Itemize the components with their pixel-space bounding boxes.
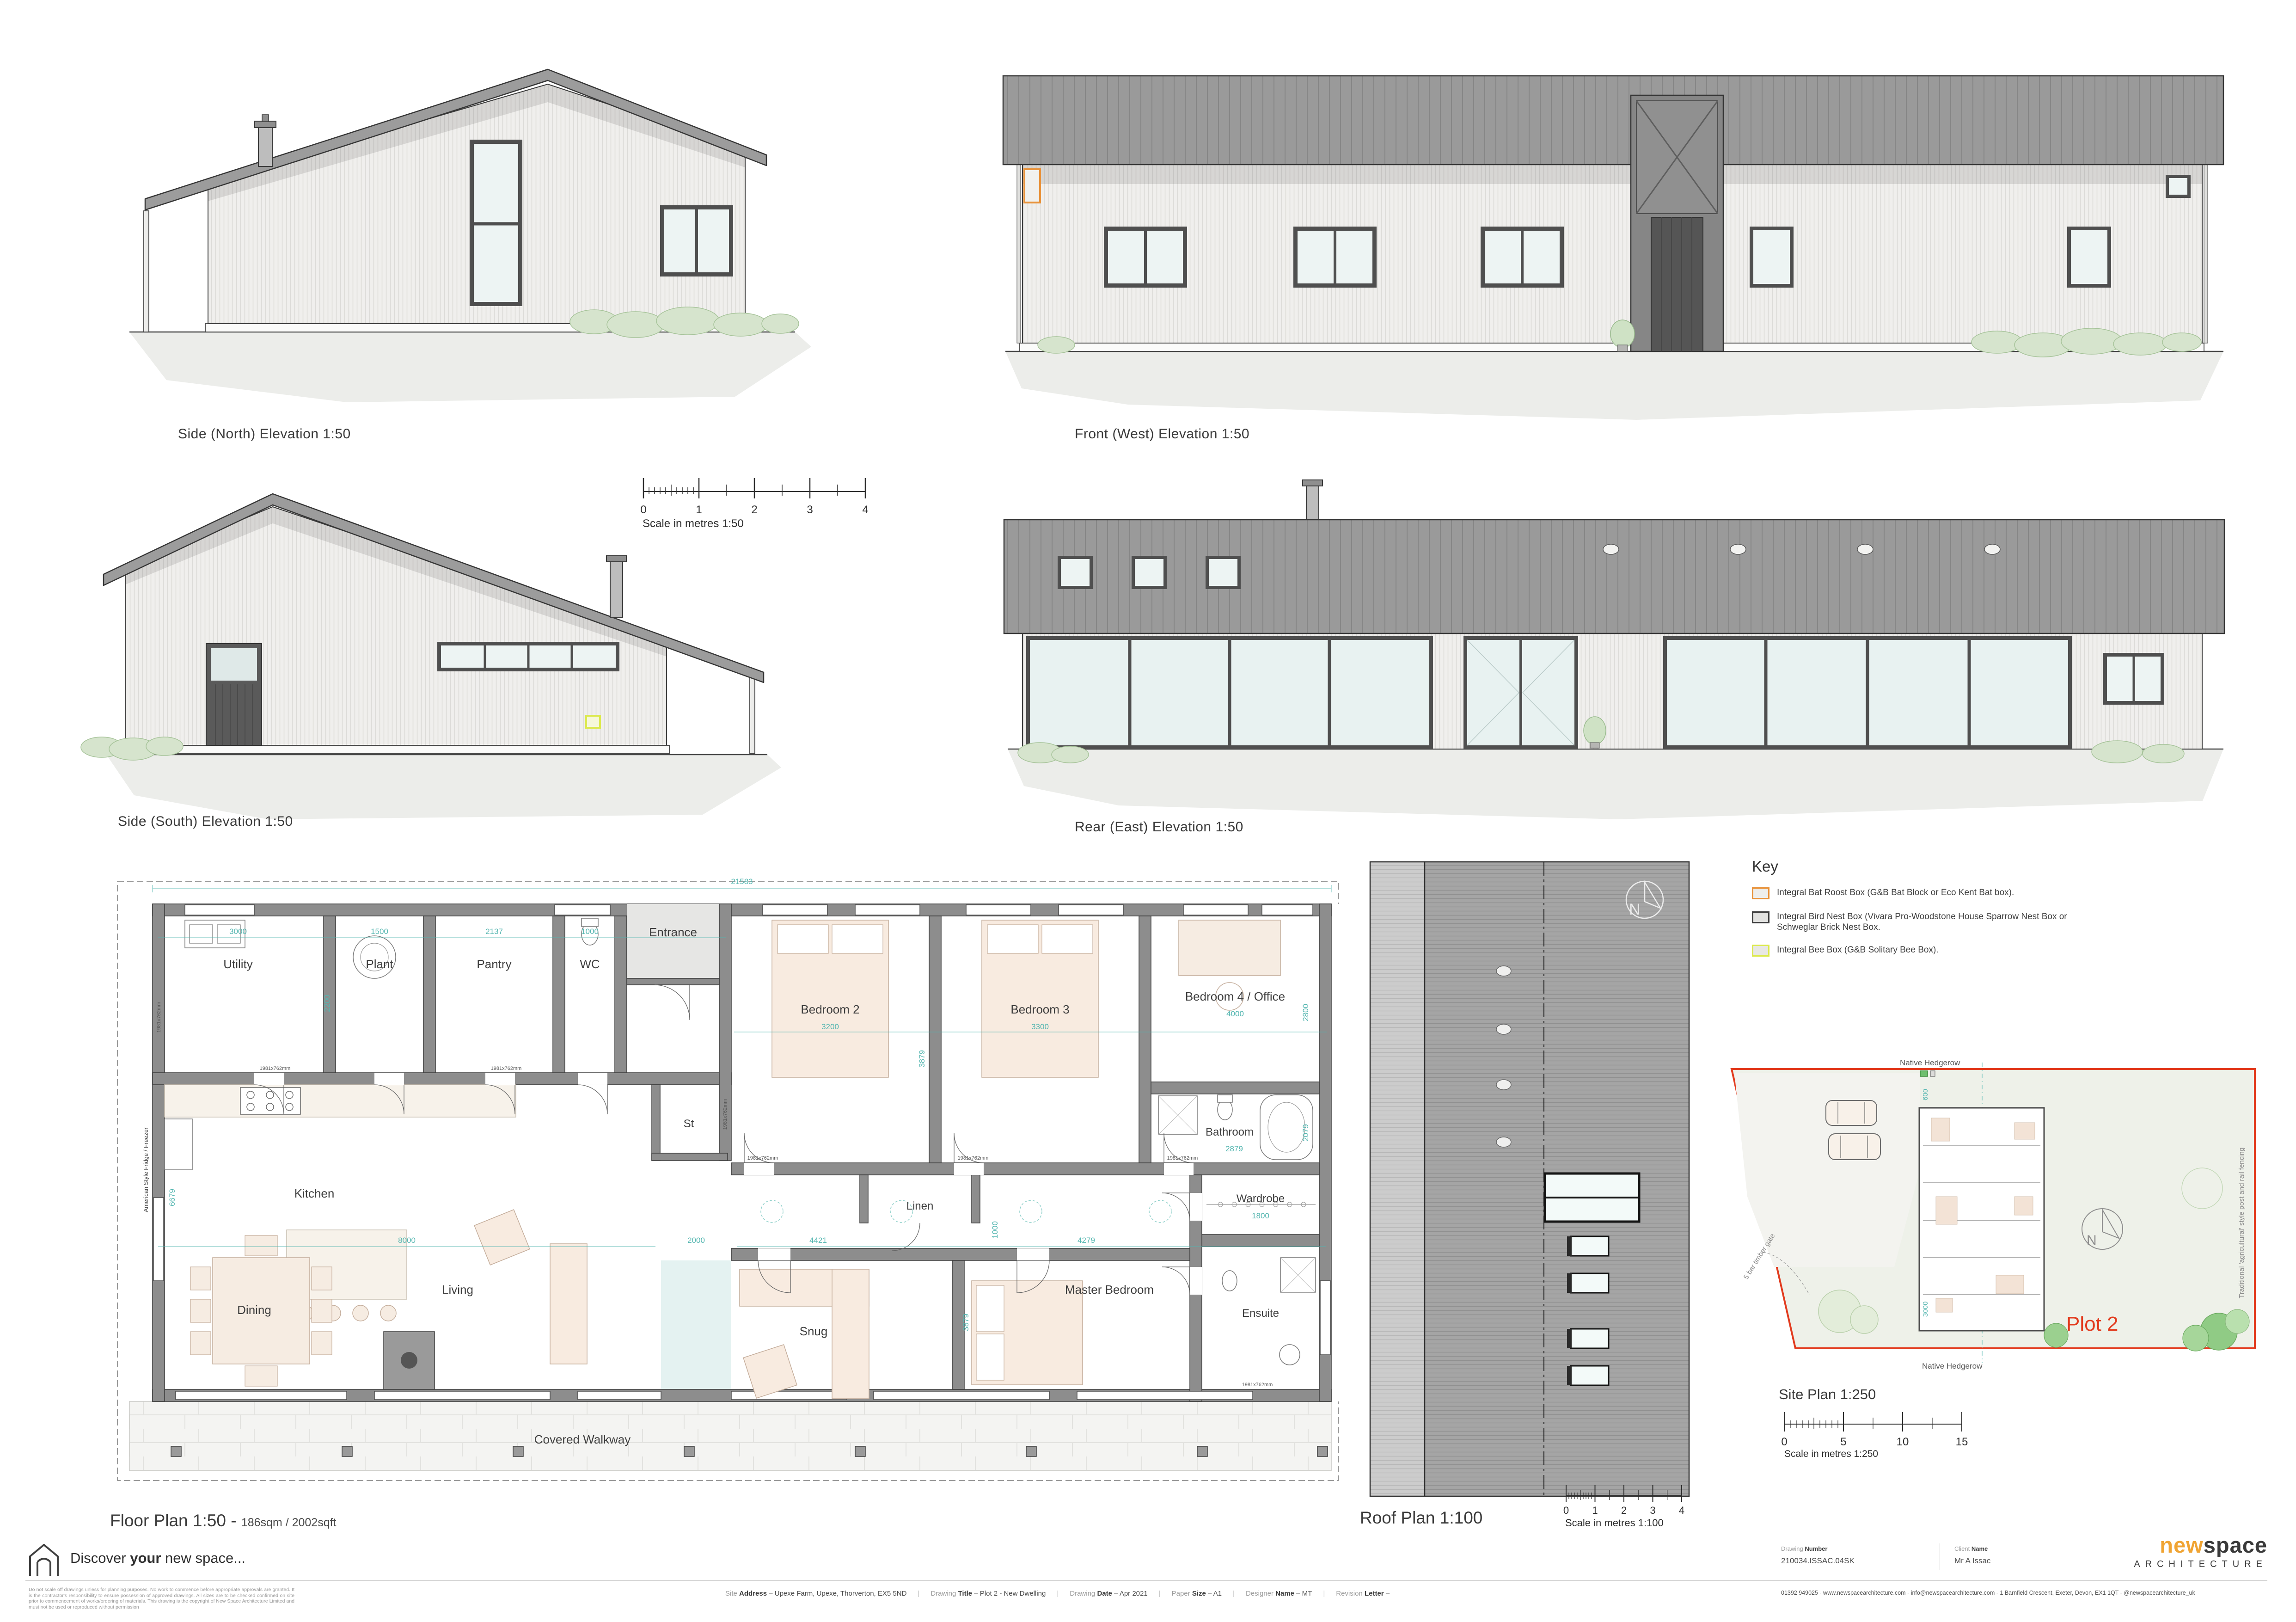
room-label-linen: Linen [906, 1200, 934, 1212]
dim-wc: 1000 [581, 927, 599, 936]
window-5 [2067, 227, 2111, 288]
key-panel: Key Integral Bat Roost Box (G&B Bat Bloc… [1752, 858, 2196, 957]
scale250-caption: Scale in metres 1:250 [1784, 1449, 1878, 1459]
contact-line: 01392 949025 - www.newspacearchitecture.… [1781, 1590, 2195, 1596]
field-value: – MT [1296, 1590, 1312, 1597]
field-label-bold: Title [958, 1590, 973, 1597]
window-pair-3 [1481, 227, 1564, 288]
porch-post [750, 677, 755, 754]
south-elevation-title: Side (South) Elevation 1:50 [118, 814, 293, 829]
brand-space: space [2204, 1533, 2267, 1557]
dim-living-depth: 6679 [168, 1189, 177, 1206]
scale250-tick: 5 [1840, 1436, 1846, 1448]
door-tag: 1981x762mm [491, 1066, 522, 1071]
roof-plan-drawing: N [1367, 859, 1693, 1499]
brand-logo: newspace ARCHITECTURE [2134, 1532, 2267, 1570]
entrance-door [206, 644, 262, 745]
roof-band [1004, 520, 2224, 633]
ground-shadow [1005, 351, 2223, 420]
window-4 [1750, 227, 1794, 288]
room-label-walkway: Covered Walkway [534, 1432, 631, 1446]
north-elevation-drawing [97, 46, 883, 425]
tall-window [470, 140, 522, 306]
driveway [1734, 1073, 1920, 1267]
dim-bathroom: 2879 [1225, 1144, 1243, 1153]
house-logo-icon [25, 1542, 62, 1579]
window-pair-2 [1293, 227, 1377, 288]
field-value: – Plot 2 - New Dwelling [974, 1590, 1046, 1597]
field-revision-letter: Revision Letter – [1336, 1590, 1390, 1597]
rear-elevation-drawing [980, 472, 2247, 842]
field-divider: | [918, 1590, 919, 1597]
room-label-wardrobe: Wardrobe [1237, 1192, 1285, 1205]
key-item-label: Integral Bee Box (G&B Solitary Bee Box). [1777, 945, 1939, 955]
site-plan-title: Site Plan 1:250 [1779, 1386, 1876, 1403]
tagline-pre: Discover [70, 1550, 130, 1566]
high-window [2166, 175, 2191, 198]
field-label: Revision [1336, 1590, 1363, 1597]
flue-cap [1303, 480, 1322, 486]
dim-master-depth: 3879 [961, 1314, 970, 1331]
key-item-bird: Integral Bird Nest Box (Vivara Pro-Woods… [1752, 911, 2186, 933]
field-label: Drawing [1070, 1590, 1095, 1597]
disclaimer-text: Do not scale off drawings unless for pla… [29, 1587, 294, 1610]
entrance-door-wall [627, 978, 719, 985]
brand-new: new [2160, 1533, 2203, 1557]
ground-shadow [129, 332, 811, 402]
dim-bed3: 3300 [1031, 1022, 1049, 1031]
field-drawing-title: Drawing Title – Plot 2 - New Dwelling [931, 1590, 1046, 1597]
dim-living: 8000 [398, 1236, 416, 1245]
client-name-label-pre: Client [1954, 1545, 1970, 1552]
key-item-bat: Integral Bat Roost Box (G&B Bat Block or… [1752, 887, 2186, 899]
drawing-number-label-bold: Number [1805, 1545, 1827, 1552]
front-elevation-title: Front (West) Elevation 1:50 [1075, 426, 1249, 442]
room-label-entrance: Entrance [649, 925, 697, 939]
dim-bed4-depth: 2800 [1301, 1004, 1310, 1021]
scale100-tick: 0 [1563, 1505, 1569, 1516]
field-label: Site [725, 1590, 737, 1597]
dim-master: 4279 [1078, 1236, 1095, 1245]
bat-box-swatch [1752, 887, 1769, 899]
field-label-bold: Size [1192, 1590, 1206, 1597]
entrance-porch [627, 904, 719, 978]
dim-utility-depth: 2200 [323, 995, 331, 1012]
house-footprint [1919, 1108, 2044, 1331]
field-site-address: Site Address – Upexe Farm, Upexe, Thorve… [725, 1590, 906, 1597]
scale100-tick: 1 [1592, 1505, 1598, 1516]
field-label-bold: Letter [1365, 1590, 1384, 1597]
dim-wardrobe: 1800 [1252, 1211, 1269, 1220]
field-divider: | [1233, 1590, 1235, 1597]
site-dim-3000: 3000 [1922, 1302, 1929, 1317]
glazed-sliding-doors-left [1026, 636, 1433, 749]
hedgerow-label-top: Native Hedgerow [1900, 1058, 1960, 1067]
room-label-wc: WC [580, 957, 600, 971]
flue [258, 127, 272, 166]
drawing-number-value: 210034.ISSAC.04SK [1781, 1556, 1855, 1566]
field-value: – [1386, 1590, 1390, 1597]
dim-bed2: 3200 [821, 1022, 839, 1031]
scale250-tick: 15 [1956, 1436, 1968, 1448]
ribbon-window [437, 642, 619, 671]
room-label-bedroom4: Bedroom 4 / Office [1185, 989, 1285, 1003]
door-tag: 1981x762mm [156, 1002, 162, 1033]
scale250-tick: 0 [1781, 1436, 1787, 1448]
door-tag: 1981x762mm [1167, 1155, 1198, 1161]
scale100-caption: Scale in metres 1:100 [1565, 1517, 1664, 1529]
dim-overall: 21583 [731, 877, 753, 886]
brand-wordmark: newspace [2134, 1532, 2267, 1558]
door-tag: 1981x762mm [958, 1155, 989, 1161]
field-label-bold: Address [739, 1590, 767, 1597]
field-designer-name: Designer Name – MT [1246, 1590, 1312, 1597]
room-label-bedroom3: Bedroom 3 [1010, 1002, 1069, 1016]
field-label: Drawing [931, 1590, 956, 1597]
footer-rule [25, 1580, 2267, 1581]
key-item-bee: Integral Bee Box (G&B Solitary Bee Box). [1752, 945, 2186, 957]
site-dim-600: 600 [1922, 1089, 1929, 1100]
plot-label: Plot 2 [2066, 1313, 2118, 1335]
field-value: – Apr 2021 [1114, 1590, 1148, 1597]
tagline: Discover your new space... [70, 1550, 245, 1567]
flue-pipe [262, 115, 269, 122]
hedgerow-label-bottom: Native Hedgerow [1922, 1362, 1983, 1370]
drawing-number-label: Drawing Number [1781, 1545, 1827, 1552]
downpipe [1017, 165, 1021, 343]
field-label: Designer [1246, 1590, 1274, 1597]
dim-bathroom-depth: 2079 [1301, 1124, 1310, 1142]
room-label-kitchen: Kitchen [294, 1186, 335, 1200]
client-name-label-bold: Name [1971, 1545, 1988, 1552]
glazed-sliding-doors-right [1663, 636, 2072, 749]
room-label-pantry: Pantry [477, 957, 511, 971]
end-window [2103, 653, 2164, 705]
scale-bar-1-100: 0 1 2 3 4 Scale in metres 1:100 [1561, 1480, 1691, 1530]
floor-plan-area: 186sqm / 2002sqft [241, 1516, 337, 1529]
dim-pantry: 2137 [485, 927, 503, 936]
dim-utility: 3000 [229, 927, 247, 936]
room-label-utility: Utility [223, 957, 253, 971]
scale-bar-1-250: 0 5 10 15 Scale in metres 1:250 [1779, 1406, 1973, 1459]
south-elevation-drawing [74, 472, 823, 823]
window-pair-1 [1104, 227, 1187, 288]
square-window [660, 205, 733, 276]
scale100-tick: 2 [1621, 1505, 1627, 1516]
tagline-post: new space... [161, 1550, 245, 1566]
field-paper-size: Paper Size – A1 [1172, 1590, 1222, 1597]
glazed-double-door [1463, 636, 1578, 749]
dim-snug: 4421 [809, 1236, 827, 1245]
dim-bed-depth: 3879 [918, 1050, 926, 1068]
downpipe [2204, 165, 2208, 343]
front-elevation-drawing [980, 65, 2247, 435]
room-label-bathroom: Bathroom [1206, 1126, 1254, 1138]
field-label-bold: Name [1275, 1590, 1294, 1597]
walkway-roof [1370, 862, 1425, 1496]
field-value: – A1 [1208, 1590, 1222, 1597]
ground-shadow [106, 755, 781, 819]
room-label-st: St [684, 1118, 694, 1130]
title-block-divider [1940, 1543, 1940, 1570]
floor-plan-title: Floor Plan 1:50 - 186sqm / 2002sqft [110, 1511, 337, 1530]
flue [1306, 485, 1319, 520]
floor-plan-drawing: 21583 3000 1500 2137 1000 2200 3200 3300… [116, 874, 1345, 1489]
room-label-dining: Dining [237, 1303, 271, 1317]
title-block-fields: Site Address – Upexe Farm, Upexe, Thorve… [719, 1590, 1396, 1597]
flue [610, 561, 623, 618]
dim-hall: 1000 [991, 1221, 999, 1239]
door-tag: 1981x762mm [747, 1155, 778, 1161]
field-value: – Upexe Farm, Upexe, Thorverton, EX5 5ND [769, 1590, 906, 1597]
room-label-ensuite: Ensuite [1242, 1307, 1279, 1320]
rear-elevation-title: Rear (East) Elevation 1:50 [1075, 819, 1243, 835]
covered-walkway-paving [129, 1401, 1331, 1471]
roof-plan-title: Roof Plan 1:100 [1360, 1508, 1482, 1528]
door-tag: 1981x762mm [722, 1099, 728, 1130]
dim-bed4: 4000 [1226, 1009, 1244, 1018]
nest-box-marker [1930, 1071, 1935, 1076]
field-label: Paper [1172, 1590, 1190, 1597]
porch-post [144, 211, 149, 332]
roof-band [1003, 76, 2223, 165]
flue-cap [255, 121, 276, 128]
glazed-link [661, 1260, 731, 1401]
door-tag: 1981x762mm [260, 1066, 291, 1071]
key-item-label: Integral Bat Roost Box (G&B Bat Block or… [1777, 887, 2014, 898]
field-label-bold: Date [1097, 1590, 1112, 1597]
scale50-tick: 4 [862, 504, 868, 516]
clerestory-windows [1058, 556, 1241, 589]
eave-shadow [1022, 165, 2202, 184]
nest-box-marker [1920, 1071, 1928, 1076]
ridge-rooflight [1545, 1173, 1639, 1222]
scale100-tick: 3 [1650, 1505, 1655, 1516]
room-label-master: Master Bedroom [1065, 1283, 1154, 1296]
key-title: Key [1752, 858, 2196, 875]
tagline-bold: your [130, 1550, 161, 1566]
flue-cap [606, 556, 626, 562]
site-plan-drawing: N Native Hedgerow Native Hedgerow 600 30… [1719, 1058, 2278, 1377]
room-label-plant: Plant [366, 957, 393, 971]
client-name-value: Mr A Issac [1954, 1556, 1990, 1566]
wall-cladding [1022, 165, 2202, 343]
field-divider: | [1057, 1590, 1059, 1597]
room-label-snug: Snug [800, 1324, 828, 1338]
key-item-label: Integral Bird Nest Box (Vivara Pro-Woods… [1777, 911, 2096, 933]
room-label-living: Living [442, 1283, 473, 1296]
room-label-bedroom2: Bedroom 2 [801, 1002, 859, 1016]
field-drawing-date: Drawing Date – Apr 2021 [1070, 1590, 1147, 1597]
drawing-sheet: { "colors": { "plot_red": "#e23b1e", "di… [0, 0, 2296, 1622]
north-letter: N [1629, 901, 1641, 918]
drawing-number-label-pre: Drawing [1781, 1545, 1803, 1552]
field-divider: | [1159, 1590, 1161, 1597]
entrance-bay [1631, 95, 1723, 351]
field-divider: | [1323, 1590, 1325, 1597]
bat-roost-box-marker [1024, 169, 1040, 203]
north-elevation-title: Side (North) Elevation 1:50 [178, 426, 351, 442]
bird-box-swatch [1752, 911, 1769, 923]
room-label-fridge: American Style Fridge / Freezer [142, 1127, 149, 1212]
dim-plant: 1500 [371, 927, 388, 936]
brand-architecture: ARCHITECTURE [2134, 1559, 2267, 1570]
client-name-label: Client Name [1954, 1545, 1988, 1552]
dim-glazed: 2000 [687, 1236, 705, 1245]
door-tag: 1981x762mm [1242, 1382, 1273, 1388]
ground-shadow [1008, 749, 2223, 819]
bee-box-swatch [1752, 945, 1769, 957]
floor-plan-title-text: Floor Plan 1:50 - [110, 1511, 237, 1530]
bee-box-marker [586, 716, 600, 728]
scale100-tick: 4 [1679, 1505, 1684, 1516]
north-letter: N [2087, 1233, 2097, 1248]
fencing-note: Traditional 'agricultural' style post an… [2238, 1148, 2246, 1298]
plinth [123, 745, 669, 754]
scale250-tick: 10 [1897, 1436, 1909, 1448]
